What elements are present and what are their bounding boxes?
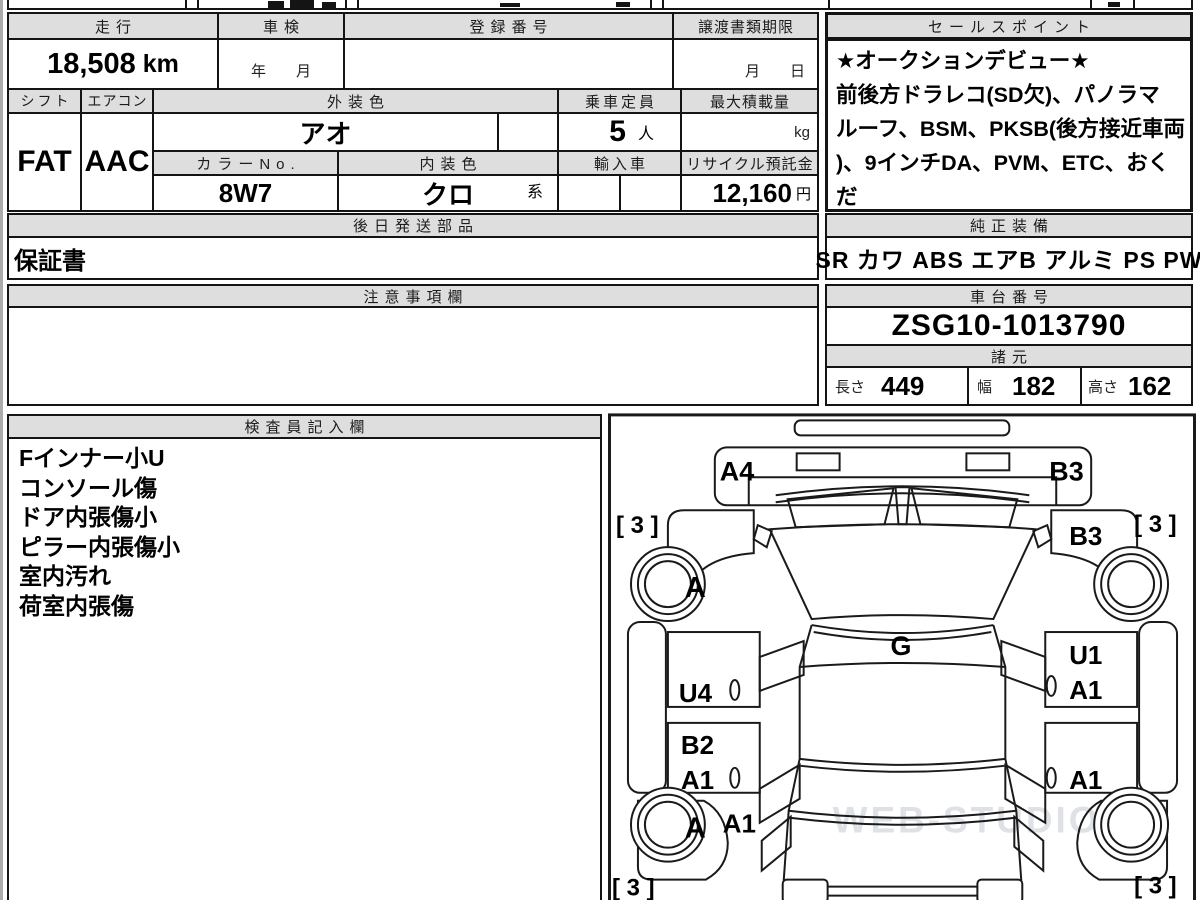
label-wheel-rear-left: A [685,813,706,845]
a-pillar-right [1001,641,1045,691]
c-pillar-left [760,765,800,823]
label-front-door-right-1: U1 [1069,642,1102,670]
color-no-header: カラーNo. [152,150,339,176]
label-front-fender-right: B3 [1069,523,1102,551]
roof-front-line [800,663,1006,667]
door-handle-lr [730,768,739,788]
capacity-value: 5 人 [557,112,682,152]
exterior-color-value: アオ [152,112,499,152]
later-parts-text: 保証書 [14,241,86,276]
front-bumper [715,447,1091,505]
shaken-placeholder: 年 月 [251,60,311,81]
label-tire-front-left: [ 3 ] [616,512,659,539]
body-side-right [993,625,1021,881]
front-bumper-step [749,477,1056,505]
mileage-header: 走行 [7,12,219,40]
wheel-front-right [1094,547,1168,621]
genuine-equipment-header: 純正装備 [825,213,1193,238]
label-front-door-left: U4 [679,680,713,708]
spec-width-value: 182 [1012,371,1055,402]
interior-color-value: クロ 系 [337,174,559,212]
recycle-number: 12,160 [712,178,792,209]
label-tire-rear-right: [ 3 ] [1134,873,1177,900]
spec-length-cell: 長さ 449 [825,366,969,406]
recycle-deposit-header: リサイクル預託金 [680,150,819,176]
windshield [770,524,1036,619]
registration-value [343,38,674,90]
auction-sheet: 走行 車検 登録番号 譲渡書類期限 18,508 km 年 月 月 日 シフト … [0,0,1200,900]
rear-bumper-left [783,880,828,900]
later-parts-value: 保証書 [7,236,819,280]
interior-color-main: クロ [422,175,474,212]
max-load-unit: kg [794,124,810,141]
transfer-placeholder: 月 日 [745,60,805,81]
aircon-value: AAC [80,112,154,212]
label-rear-door-left-2: A1 [681,767,714,795]
mileage-value: 18,508 km [7,38,219,90]
bumper-sensor-left [797,453,840,470]
transfer-deadline-header: 譲渡書類期限 [672,12,819,40]
roof-rear-arc-2 [801,766,1005,772]
label-tire-front-right: [ 3 ] [1134,511,1177,538]
spec-height-label: 高さ [1088,376,1118,397]
spec-height-cell: 高さ 162 [1080,366,1193,406]
shift-value: FAT [7,112,82,212]
mileage-number: 18,508 [47,48,136,81]
label-front-bumper-right: B3 [1049,456,1083,486]
rear-bumper-right [977,880,1022,900]
shaken-value: 年 月 [217,38,345,90]
body-side-left [784,625,812,881]
label-rear-quarter-left: A1 [723,811,756,839]
chassis-number-header: 車台番号 [825,284,1193,308]
registration-header: 登録番号 [343,12,674,40]
label-rear-door-right: A1 [1069,767,1102,795]
transfer-deadline-value: 月 日 [672,38,819,90]
capacity-number: 5 [609,115,626,149]
spec-width-label: 幅 [977,376,992,397]
spec-length-label: 長さ [835,376,865,397]
inspector-notes-box: Fインナー小U コンソール傷 ドア内張傷小 ピラー内張傷小 室内汚れ 荷室内張傷 [7,437,602,900]
sales-point-box: ★オークションデビュー★ 前後方ドラレコ(SD欠)、パノラマ ルーフ、BSM、P… [825,38,1193,212]
inspector-notes-header: 検査員記入欄 [7,414,602,439]
label-front-door-right-2: A1 [1069,677,1102,705]
later-parts-header: 後日発送部品 [7,213,819,238]
hood-arc-2 [776,493,1030,502]
cautions-header: 注意事項欄 [7,284,819,308]
max-load-header: 最大積載量 [680,88,819,114]
scan-edge [0,0,3,900]
label-tire-rear-left: [ 3 ] [612,875,655,900]
sales-point-header: セールスポイント [825,12,1193,40]
chassis-number-value: ZSG10-1013790 [825,306,1193,346]
spec-length-value: 449 [881,371,924,402]
label-wheel-front-left: A [685,572,706,604]
max-load-value: kg [680,112,819,152]
damage-diagram: WEB-STUDIO.RU [608,413,1197,900]
exterior-color-extra-cell [497,112,559,152]
import-car-cell-2 [619,174,682,212]
shaken-header: 車検 [217,12,345,40]
spec-height-value: 162 [1128,371,1171,402]
capacity-header: 乗車定員 [557,88,682,114]
genuine-equipment-value: SR カワ ABS エアB アルミ PS PW [825,236,1193,280]
color-no-value: 8W7 [152,174,339,212]
interior-color-suffix: 系 [527,178,543,202]
interior-color-header: 内装色 [337,150,559,176]
label-front-bumper-left: A4 [720,456,754,486]
car-diagram-svg: WEB-STUDIO.RU [608,413,1197,900]
label-rear-door-left-1: B2 [681,732,714,760]
shift-header: シフト [7,88,82,114]
import-car-cell-1 [557,174,621,212]
import-car-header: 輸入車 [557,150,682,176]
door-handle-rr [1047,768,1056,788]
exterior-color-header: 外装色 [152,88,559,114]
recycle-deposit-value: 12,160 円 [680,174,819,212]
bumper-sensor-right [966,453,1009,470]
spec-width-cell: 幅 182 [967,366,1082,406]
a-pillar-left [760,641,804,691]
roof-strip [795,420,1010,435]
roof-rear-arc-1 [800,759,1006,765]
specs-header: 諸元 [825,344,1193,368]
label-windshield: G [891,631,912,661]
side-sill-left [628,622,666,793]
aircon-header: エアコン [80,88,154,114]
mileage-unit: km [143,50,179,79]
cautions-box [7,306,819,406]
recycle-unit: 円 [796,183,811,204]
side-sill-right [1139,622,1177,793]
door-handle-rf [1047,676,1056,696]
door-handle-lf [730,680,739,700]
wheel-rear-right [1094,788,1168,862]
capacity-unit: 人 [638,120,654,144]
